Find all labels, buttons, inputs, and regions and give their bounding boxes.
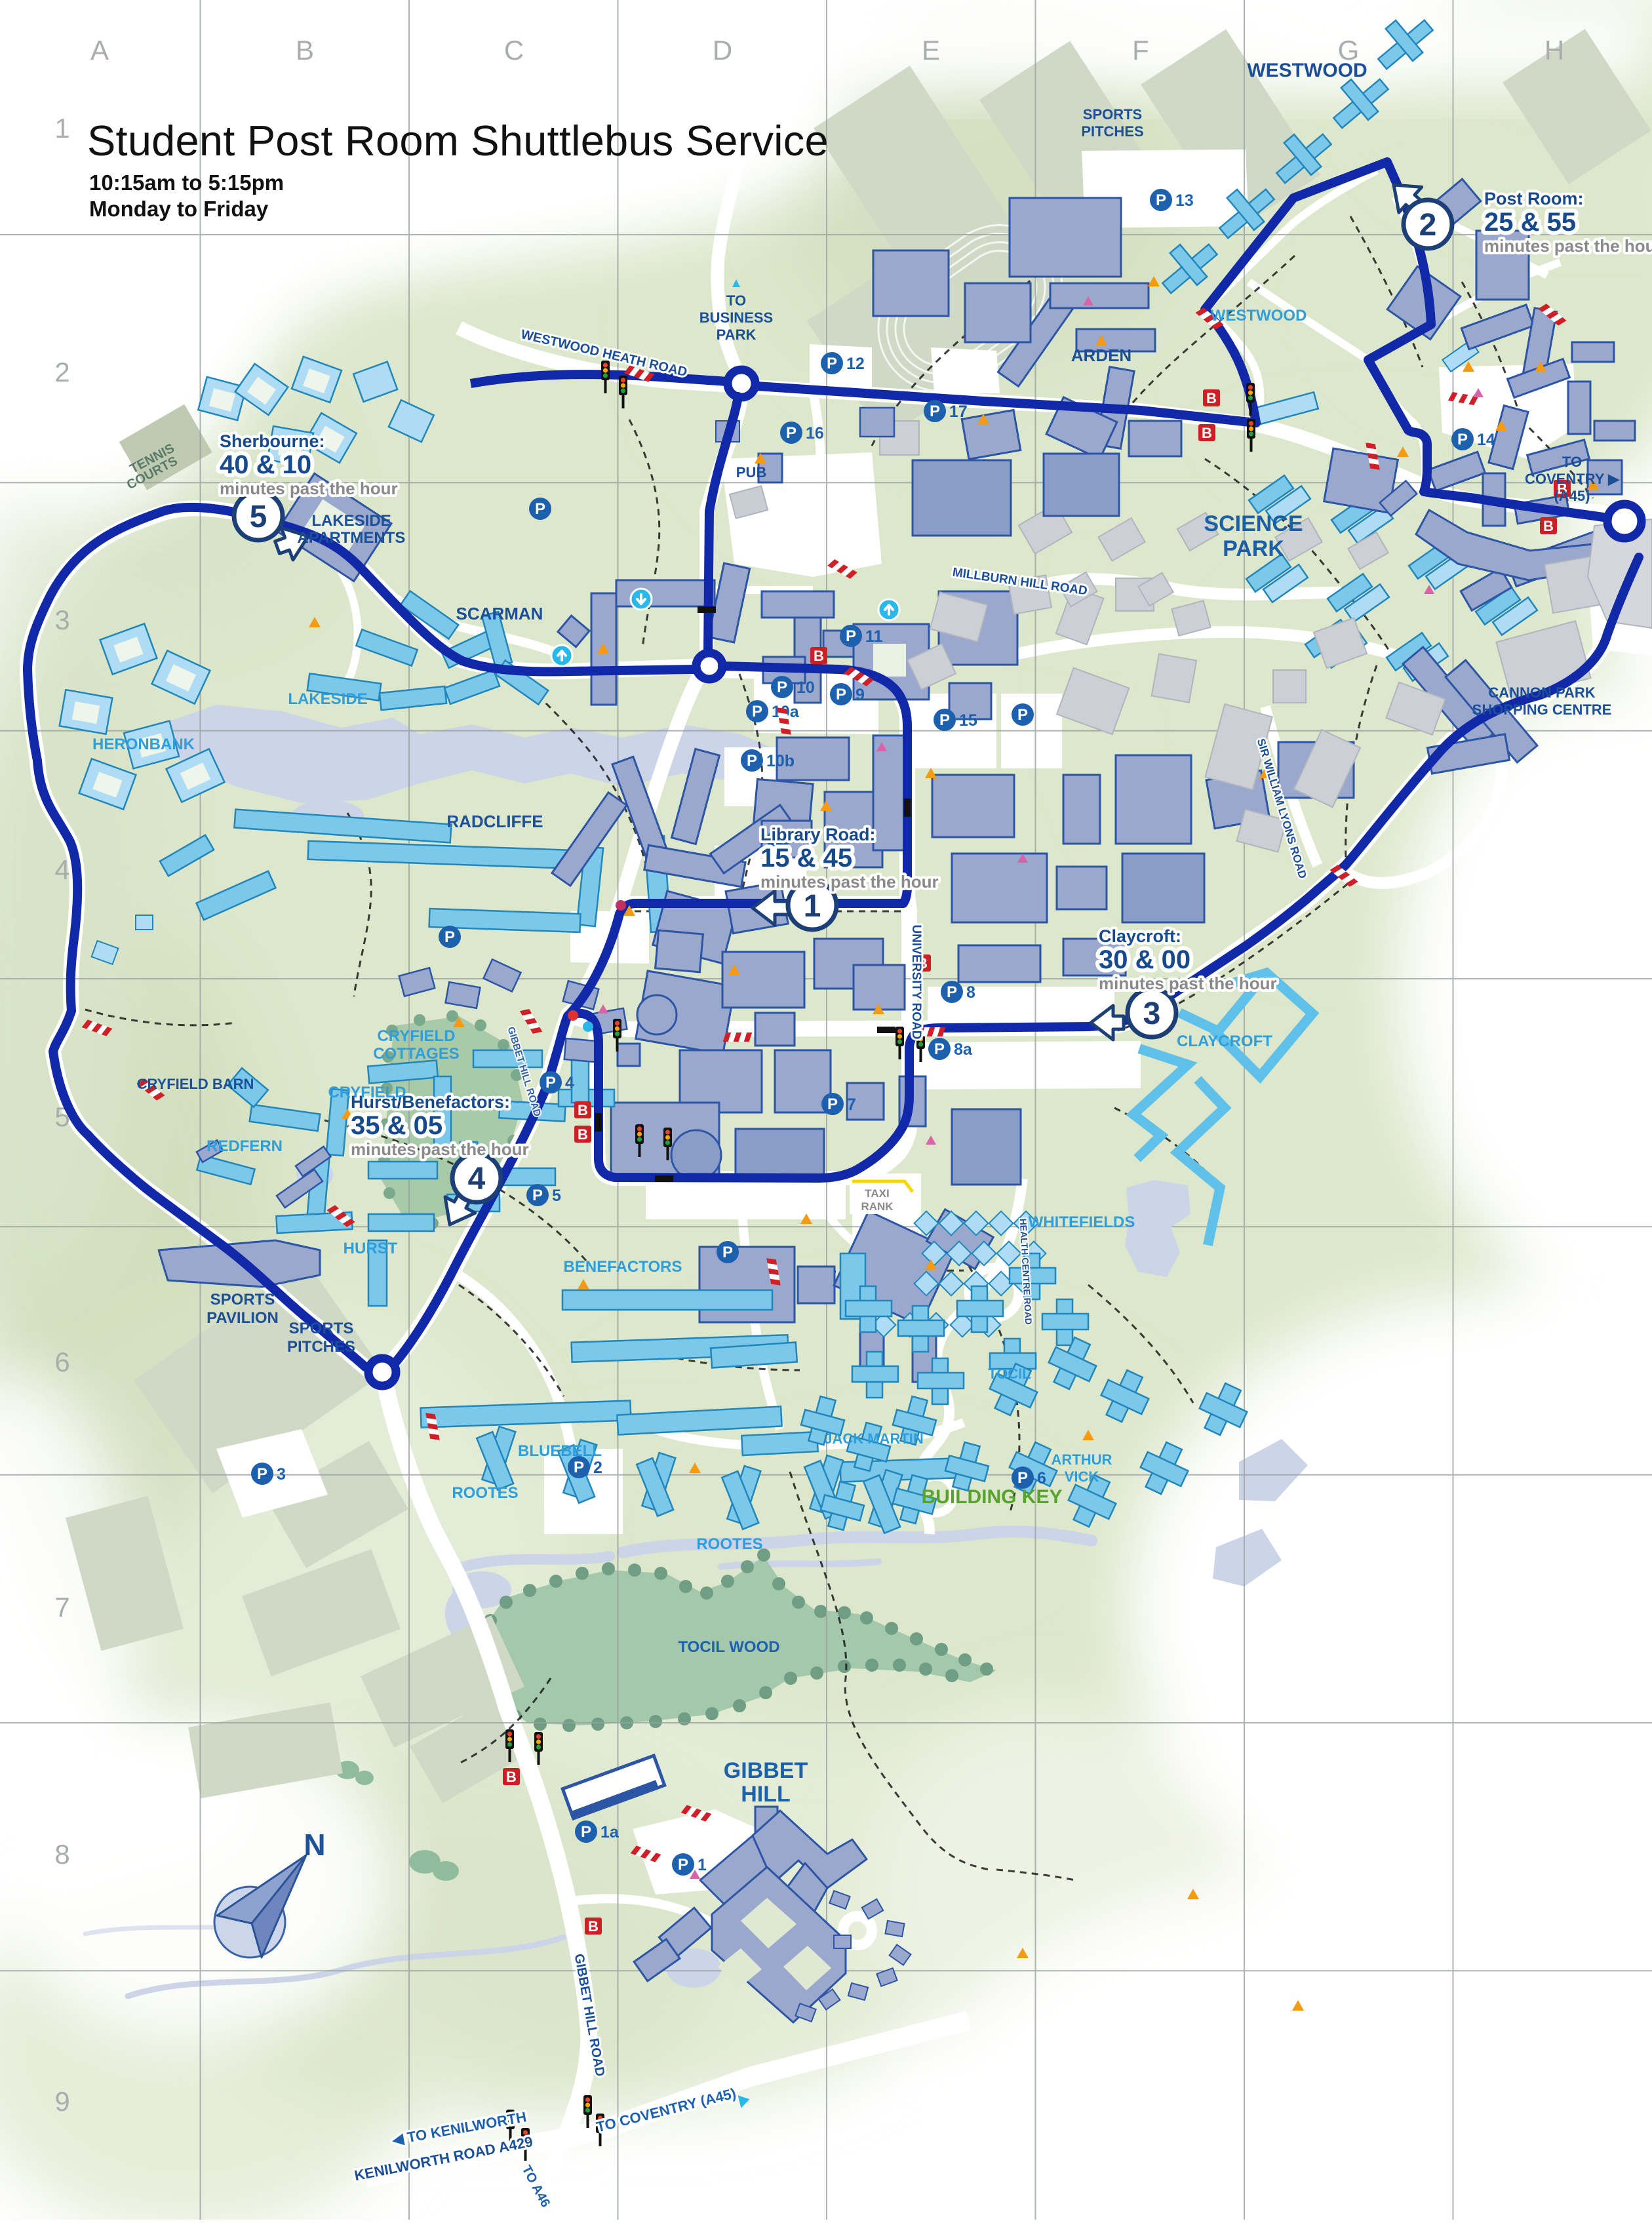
- svg-text:P: P: [1017, 706, 1028, 724]
- svg-text:P: P: [574, 1459, 584, 1476]
- svg-text:P: P: [532, 1187, 543, 1204]
- svg-text:B: B: [506, 1769, 517, 1785]
- svg-text:UNIVERSITY ROAD: UNIVERSITY ROAD: [909, 925, 923, 1040]
- svg-text:10: 10: [796, 679, 815, 697]
- svg-text:P: P: [934, 1040, 945, 1058]
- svg-text:BUSINESS: BUSINESS: [699, 309, 773, 326]
- svg-text:minutes past the hour: minutes past the hour: [351, 1139, 529, 1159]
- svg-text:Monday to Friday: Monday to Friday: [89, 197, 269, 221]
- svg-text:JACK MARTIN: JACK MARTIN: [824, 1430, 924, 1447]
- svg-text:P: P: [752, 703, 762, 720]
- svg-text:B: B: [588, 1918, 599, 1935]
- svg-text:B: B: [578, 1102, 588, 1118]
- svg-text:30 & 00: 30 & 00: [1099, 945, 1190, 974]
- svg-text:HERONBANK: HERONBANK: [92, 736, 195, 753]
- svg-text:CLAYCROFT: CLAYCROFT: [1177, 1033, 1272, 1050]
- svg-text:PUB: PUB: [736, 464, 766, 481]
- svg-text:BUILDING KEY: BUILDING KEY: [921, 1486, 1062, 1508]
- svg-text:SCIENCE: SCIENCE: [1204, 511, 1303, 536]
- svg-text:10:15am to 5:15pm: 10:15am to 5:15pm: [89, 170, 284, 195]
- svg-text:WHITEFIELDS: WHITEFIELDS: [1029, 1213, 1135, 1231]
- svg-text:P: P: [535, 500, 545, 518]
- svg-text:P: P: [827, 1095, 838, 1113]
- svg-text:(A45): (A45): [1554, 488, 1590, 504]
- svg-text:15: 15: [959, 711, 977, 730]
- svg-text:C: C: [504, 35, 524, 66]
- svg-text:11: 11: [865, 627, 883, 646]
- svg-text:B: B: [578, 1126, 588, 1143]
- svg-text:3: 3: [1143, 996, 1161, 1031]
- svg-text:P: P: [939, 711, 950, 729]
- svg-text:TAXI: TAXI: [865, 1187, 889, 1200]
- svg-text:H: H: [1544, 35, 1564, 66]
- svg-text:HURST: HURST: [344, 1240, 398, 1257]
- svg-text:35 & 05: 35 & 05: [351, 1111, 442, 1140]
- svg-text:TO: TO: [1562, 454, 1582, 470]
- svg-text:COVENTRY ▶: COVENTRY ▶: [1525, 471, 1620, 487]
- svg-text:WESTWOOD: WESTWOOD: [1247, 60, 1367, 81]
- svg-text:B: B: [1543, 518, 1554, 534]
- svg-text:APARTMENTS: APARTMENTS: [298, 529, 406, 547]
- svg-text:P: P: [947, 983, 957, 1001]
- svg-text:B: B: [1206, 390, 1217, 406]
- svg-text:17: 17: [949, 403, 968, 421]
- svg-text:BLUEBELL: BLUEBELL: [518, 1442, 602, 1460]
- svg-text:RANK: RANK: [861, 1200, 894, 1213]
- svg-text:10b: 10b: [766, 752, 795, 770]
- svg-text:3: 3: [54, 604, 69, 635]
- svg-text:9: 9: [855, 686, 865, 704]
- svg-text:P: P: [846, 627, 856, 645]
- svg-text:ROOTES: ROOTES: [696, 1535, 762, 1553]
- svg-text:D: D: [713, 35, 732, 66]
- svg-text:4: 4: [565, 1074, 574, 1092]
- svg-text:5: 5: [250, 500, 267, 534]
- svg-text:minutes past the hour: minutes past the hour: [1484, 236, 1652, 256]
- svg-text:PARK: PARK: [1223, 536, 1284, 561]
- svg-text:P: P: [836, 686, 846, 703]
- svg-text:1: 1: [804, 889, 821, 924]
- svg-text:8a: 8a: [954, 1040, 973, 1059]
- svg-text:minutes past the hour: minutes past the hour: [1099, 974, 1277, 993]
- svg-text:TOCIL WOOD: TOCIL WOOD: [678, 1638, 779, 1656]
- svg-text:P: P: [1457, 431, 1468, 448]
- svg-text:9: 9: [54, 2086, 69, 2117]
- svg-text:CRYFIELD: CRYFIELD: [377, 1027, 455, 1045]
- svg-text:ROOTES: ROOTES: [452, 1484, 518, 1502]
- svg-text:P: P: [444, 928, 455, 946]
- svg-text:LAKESIDE: LAKESIDE: [311, 512, 391, 530]
- svg-text:RADCLIFFE: RADCLIFFE: [446, 812, 543, 831]
- svg-text:ARTHUR: ARTHUR: [1052, 1451, 1112, 1468]
- svg-text:minutes past the hour: minutes past the hour: [760, 872, 939, 892]
- svg-text:A: A: [90, 35, 109, 66]
- svg-text:B: B: [296, 35, 314, 66]
- svg-text:15 & 45: 15 & 45: [760, 844, 852, 873]
- svg-text:SCARMAN: SCARMAN: [456, 604, 543, 623]
- svg-text:P: P: [930, 403, 940, 420]
- svg-text:PAVILION: PAVILION: [206, 1309, 279, 1327]
- svg-text:7: 7: [54, 1592, 69, 1623]
- svg-text:1a: 1a: [600, 1823, 619, 1841]
- svg-text:4: 4: [468, 1162, 486, 1196]
- svg-text:2: 2: [54, 357, 69, 387]
- svg-text:P: P: [786, 424, 796, 442]
- svg-text:TOCIL: TOCIL: [988, 1366, 1031, 1382]
- svg-text:12: 12: [846, 355, 865, 373]
- svg-text:minutes past the hour: minutes past the hour: [220, 479, 398, 498]
- svg-text:16: 16: [806, 424, 824, 443]
- svg-text:Sherbourne:: Sherbourne:: [220, 431, 325, 451]
- svg-text:COTTAGES: COTTAGES: [373, 1045, 460, 1063]
- svg-text:25 & 55: 25 & 55: [1484, 208, 1576, 237]
- svg-text:F: F: [1132, 35, 1149, 66]
- svg-text:13: 13: [1175, 191, 1194, 210]
- svg-text:HILL: HILL: [741, 1782, 791, 1807]
- svg-text:PITCHES: PITCHES: [1081, 123, 1143, 140]
- svg-text:CRYFIELD BARN: CRYFIELD BARN: [137, 1076, 254, 1092]
- svg-text:PARK: PARK: [717, 326, 757, 343]
- svg-text:P: P: [1017, 1469, 1028, 1487]
- svg-text:P: P: [545, 1074, 556, 1092]
- svg-text:SPORTS: SPORTS: [210, 1291, 275, 1308]
- svg-text:14: 14: [1477, 431, 1495, 449]
- svg-text:1: 1: [698, 1856, 707, 1874]
- svg-text:WESTWOOD: WESTWOOD: [1211, 307, 1307, 325]
- svg-text:6: 6: [1037, 1469, 1046, 1487]
- svg-text:BENEFACTORS: BENEFACTORS: [564, 1258, 682, 1276]
- svg-text:1: 1: [54, 113, 69, 144]
- svg-text:CRYFIELD: CRYFIELD: [328, 1084, 406, 1101]
- svg-text:P: P: [1156, 191, 1166, 209]
- svg-text:REDFERN: REDFERN: [206, 1137, 283, 1155]
- svg-text:SHOPPING CENTRE: SHOPPING CENTRE: [1472, 701, 1612, 718]
- svg-text:P: P: [722, 1244, 733, 1261]
- svg-text:P: P: [777, 679, 787, 696]
- svg-text:B: B: [814, 648, 824, 664]
- svg-text:PITCHES: PITCHES: [287, 1338, 355, 1356]
- svg-text:P: P: [581, 1823, 591, 1841]
- svg-text:8: 8: [54, 1839, 69, 1870]
- svg-text:P: P: [678, 1856, 688, 1874]
- svg-text:7: 7: [847, 1095, 856, 1114]
- svg-text:Student Post Room Shuttlebus S: Student Post Room Shuttlebus Service: [87, 117, 829, 165]
- svg-text:TO: TO: [726, 292, 746, 309]
- svg-text:SPORTS: SPORTS: [1083, 106, 1142, 123]
- svg-text:P: P: [257, 1465, 267, 1483]
- svg-text:LAKESIDE: LAKESIDE: [288, 690, 367, 708]
- svg-text:P: P: [747, 752, 757, 770]
- svg-text:3: 3: [277, 1465, 286, 1484]
- svg-text:CANNON PARK: CANNON PARK: [1488, 684, 1595, 701]
- svg-text:4: 4: [54, 854, 69, 885]
- svg-text:E: E: [922, 35, 940, 66]
- svg-text:40 & 10: 40 & 10: [220, 450, 311, 479]
- svg-text:SPORTS: SPORTS: [289, 1320, 354, 1337]
- svg-text:ARDEN: ARDEN: [1071, 345, 1131, 365]
- svg-text:P: P: [827, 355, 837, 372]
- svg-text:GIBBET: GIBBET: [724, 1758, 808, 1783]
- svg-text:Post Room:: Post Room:: [1484, 189, 1584, 208]
- svg-text:5: 5: [552, 1187, 561, 1205]
- svg-text:Claycroft:: Claycroft:: [1099, 926, 1181, 946]
- svg-text:6: 6: [54, 1347, 69, 1377]
- svg-text:VICK: VICK: [1065, 1468, 1099, 1485]
- svg-text:N: N: [304, 1828, 325, 1862]
- svg-text:Library Road:: Library Road:: [760, 825, 876, 844]
- svg-text:8: 8: [966, 983, 975, 1002]
- svg-text:2: 2: [593, 1459, 602, 1477]
- svg-text:B: B: [1202, 425, 1212, 441]
- svg-text:2: 2: [1419, 208, 1437, 243]
